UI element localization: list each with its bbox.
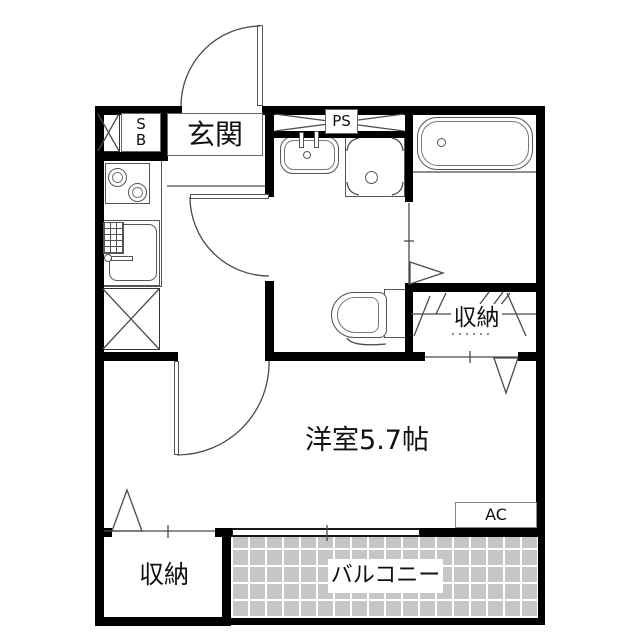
balcony-rail-bottom (231, 618, 545, 625)
wall-bath-closet (405, 283, 545, 292)
room-door-swing-arc (177, 361, 269, 455)
wall-closet-right (222, 528, 231, 626)
balcony-label-box: バルコニー (328, 559, 443, 593)
closet-bottom-label: 収納 (139, 562, 189, 588)
wall-mid-kitchen (95, 352, 178, 361)
washing-machine-drain (365, 171, 378, 184)
washbasin-tap (299, 132, 304, 148)
washbasin-drain (303, 151, 311, 159)
washroom-door-leaf (190, 194, 269, 199)
wall-shoebox-bottom (95, 152, 168, 161)
refrigerator-space-box (102, 288, 160, 350)
wall-bottom-left-stub1 (95, 528, 112, 537)
toilet-flush-arc (347, 338, 386, 345)
wall-washroom-bath-upper (405, 113, 413, 202)
main-room-label-box: 洋室5.7帖 (277, 426, 457, 456)
balcony-rail-right (538, 537, 545, 625)
wall-left-exterior (95, 106, 104, 626)
shoe-box-label-bottom: B (136, 133, 146, 149)
room-door-leaf (174, 361, 179, 455)
entrance-door-leaf (257, 25, 263, 106)
wall-top-right-segment (262, 106, 545, 115)
closet-right-label: 収納 (454, 306, 500, 330)
stove-burner-inner (112, 172, 123, 183)
ac-label-box: AC (455, 502, 537, 528)
hanger-mark (494, 292, 503, 304)
ac-label: AC (485, 507, 507, 524)
toilet-bowl-inner (337, 297, 379, 333)
washing-machine-pan-icon (345, 136, 405, 197)
wall-bottom-right (420, 528, 545, 537)
hanger-mark (436, 293, 446, 314)
balcony-sliding-window (232, 528, 420, 537)
hanger-mark (507, 293, 526, 336)
wall-right-exterior (536, 106, 545, 537)
entrance-door-swing-arc (181, 26, 260, 106)
bath-folding-door-icon (410, 262, 443, 284)
washbasin-tap (314, 131, 319, 148)
wall-mid-closet-stub (518, 352, 545, 361)
closet-right-label-box: 収納 (451, 304, 502, 332)
entrance-label: 玄関 (187, 120, 243, 149)
wall-mid-washroom (265, 352, 425, 361)
main-room-label: 洋室5.7帖 (305, 427, 429, 455)
stove-burner-inner (132, 187, 143, 198)
closet-bottom-folding-door-icon (112, 490, 142, 531)
wall-washroom-bath-lower (405, 286, 413, 361)
entrance-label-box: 玄関 (167, 113, 263, 156)
hanger-mark (480, 292, 489, 304)
wall-hall-washroom-upper (265, 113, 274, 197)
shoe-box: S B (121, 113, 161, 152)
washroom-door-swing-arc (190, 197, 269, 276)
toilet-tank (384, 289, 407, 338)
wall-hall-washroom-lower (265, 281, 274, 361)
pipe-space-label: PS (332, 114, 351, 130)
hanger-mark (414, 296, 430, 336)
pipe-space-label-box: PS (325, 109, 358, 134)
faucet-bar (111, 256, 133, 261)
wall-closet-bottom (95, 617, 231, 626)
sink-drainer-grid-icon (103, 222, 124, 254)
closet-bottom-label-box: 収納 (134, 560, 194, 590)
floorplan-canvas: S B 玄関 PS 収納 洋室5.7帖 AC 収納 バルコニー (0, 0, 640, 640)
bathtub-drain (437, 138, 446, 147)
balcony-label: バルコニー (331, 564, 441, 587)
closet-right-folding-door-icon (494, 358, 518, 393)
